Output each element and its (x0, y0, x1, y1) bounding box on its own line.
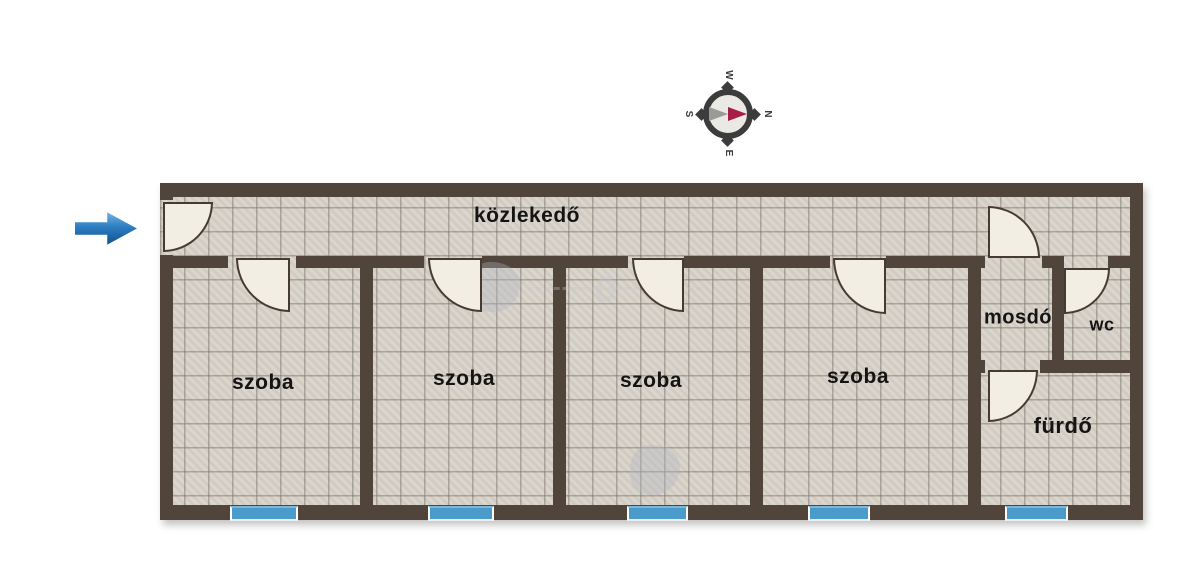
wall-room3-room4 (750, 268, 763, 505)
window-room3 (627, 506, 688, 521)
label-room3: szoba (620, 369, 682, 393)
window-room4 (808, 506, 870, 521)
wall-corridor-seg (1108, 256, 1130, 268)
floor-plan-page: N E S W (0, 0, 1200, 567)
wall-room1-room2 (360, 268, 373, 505)
wall-corridor-seg (173, 256, 228, 268)
wall-outer-top (160, 183, 1143, 197)
window-room2 (428, 506, 494, 521)
floor-plan: közlekedő szoba szoba szoba szoba mosdó … (160, 183, 1143, 520)
wall-corridor-seg (886, 256, 985, 268)
compass-rose: N E S W (686, 72, 770, 156)
compass-needle-north (728, 107, 747, 121)
label-room2: szoba (433, 367, 495, 391)
wall-outer-left-upper (160, 183, 173, 200)
wall-corridor-seg (296, 256, 424, 268)
compass-east-label: E (723, 146, 734, 160)
label-mosdo: mosdó (984, 307, 1052, 330)
wall-outer-right (1130, 183, 1143, 520)
compass-north-label: N (762, 107, 773, 121)
wall-furdo-seg (1040, 360, 1130, 373)
label-furdo: fürdő (1034, 413, 1093, 439)
compass-west-label: W (723, 68, 734, 82)
wall-outer-left-lower (160, 255, 173, 520)
watermark-letter-shape (596, 276, 616, 302)
wall-mosdo-wc (1052, 268, 1064, 373)
window-room1 (230, 506, 298, 521)
wall-room2-room3 (553, 268, 566, 505)
label-room1: szoba (232, 371, 294, 395)
wall-furdo-seg (968, 360, 985, 373)
wall-room4-bathrooms (968, 268, 981, 505)
label-corridor: közlekedő (474, 204, 580, 228)
label-room4: szoba (827, 365, 889, 389)
label-wc: wc (1089, 315, 1114, 336)
compass-needle-south (709, 107, 728, 121)
wall-corridor-seg (684, 256, 830, 268)
entrance-arrow-icon (75, 211, 137, 246)
compass-south-label: S (683, 107, 694, 121)
wall-corridor-seg (1042, 256, 1064, 268)
window-furdo (1005, 506, 1068, 521)
